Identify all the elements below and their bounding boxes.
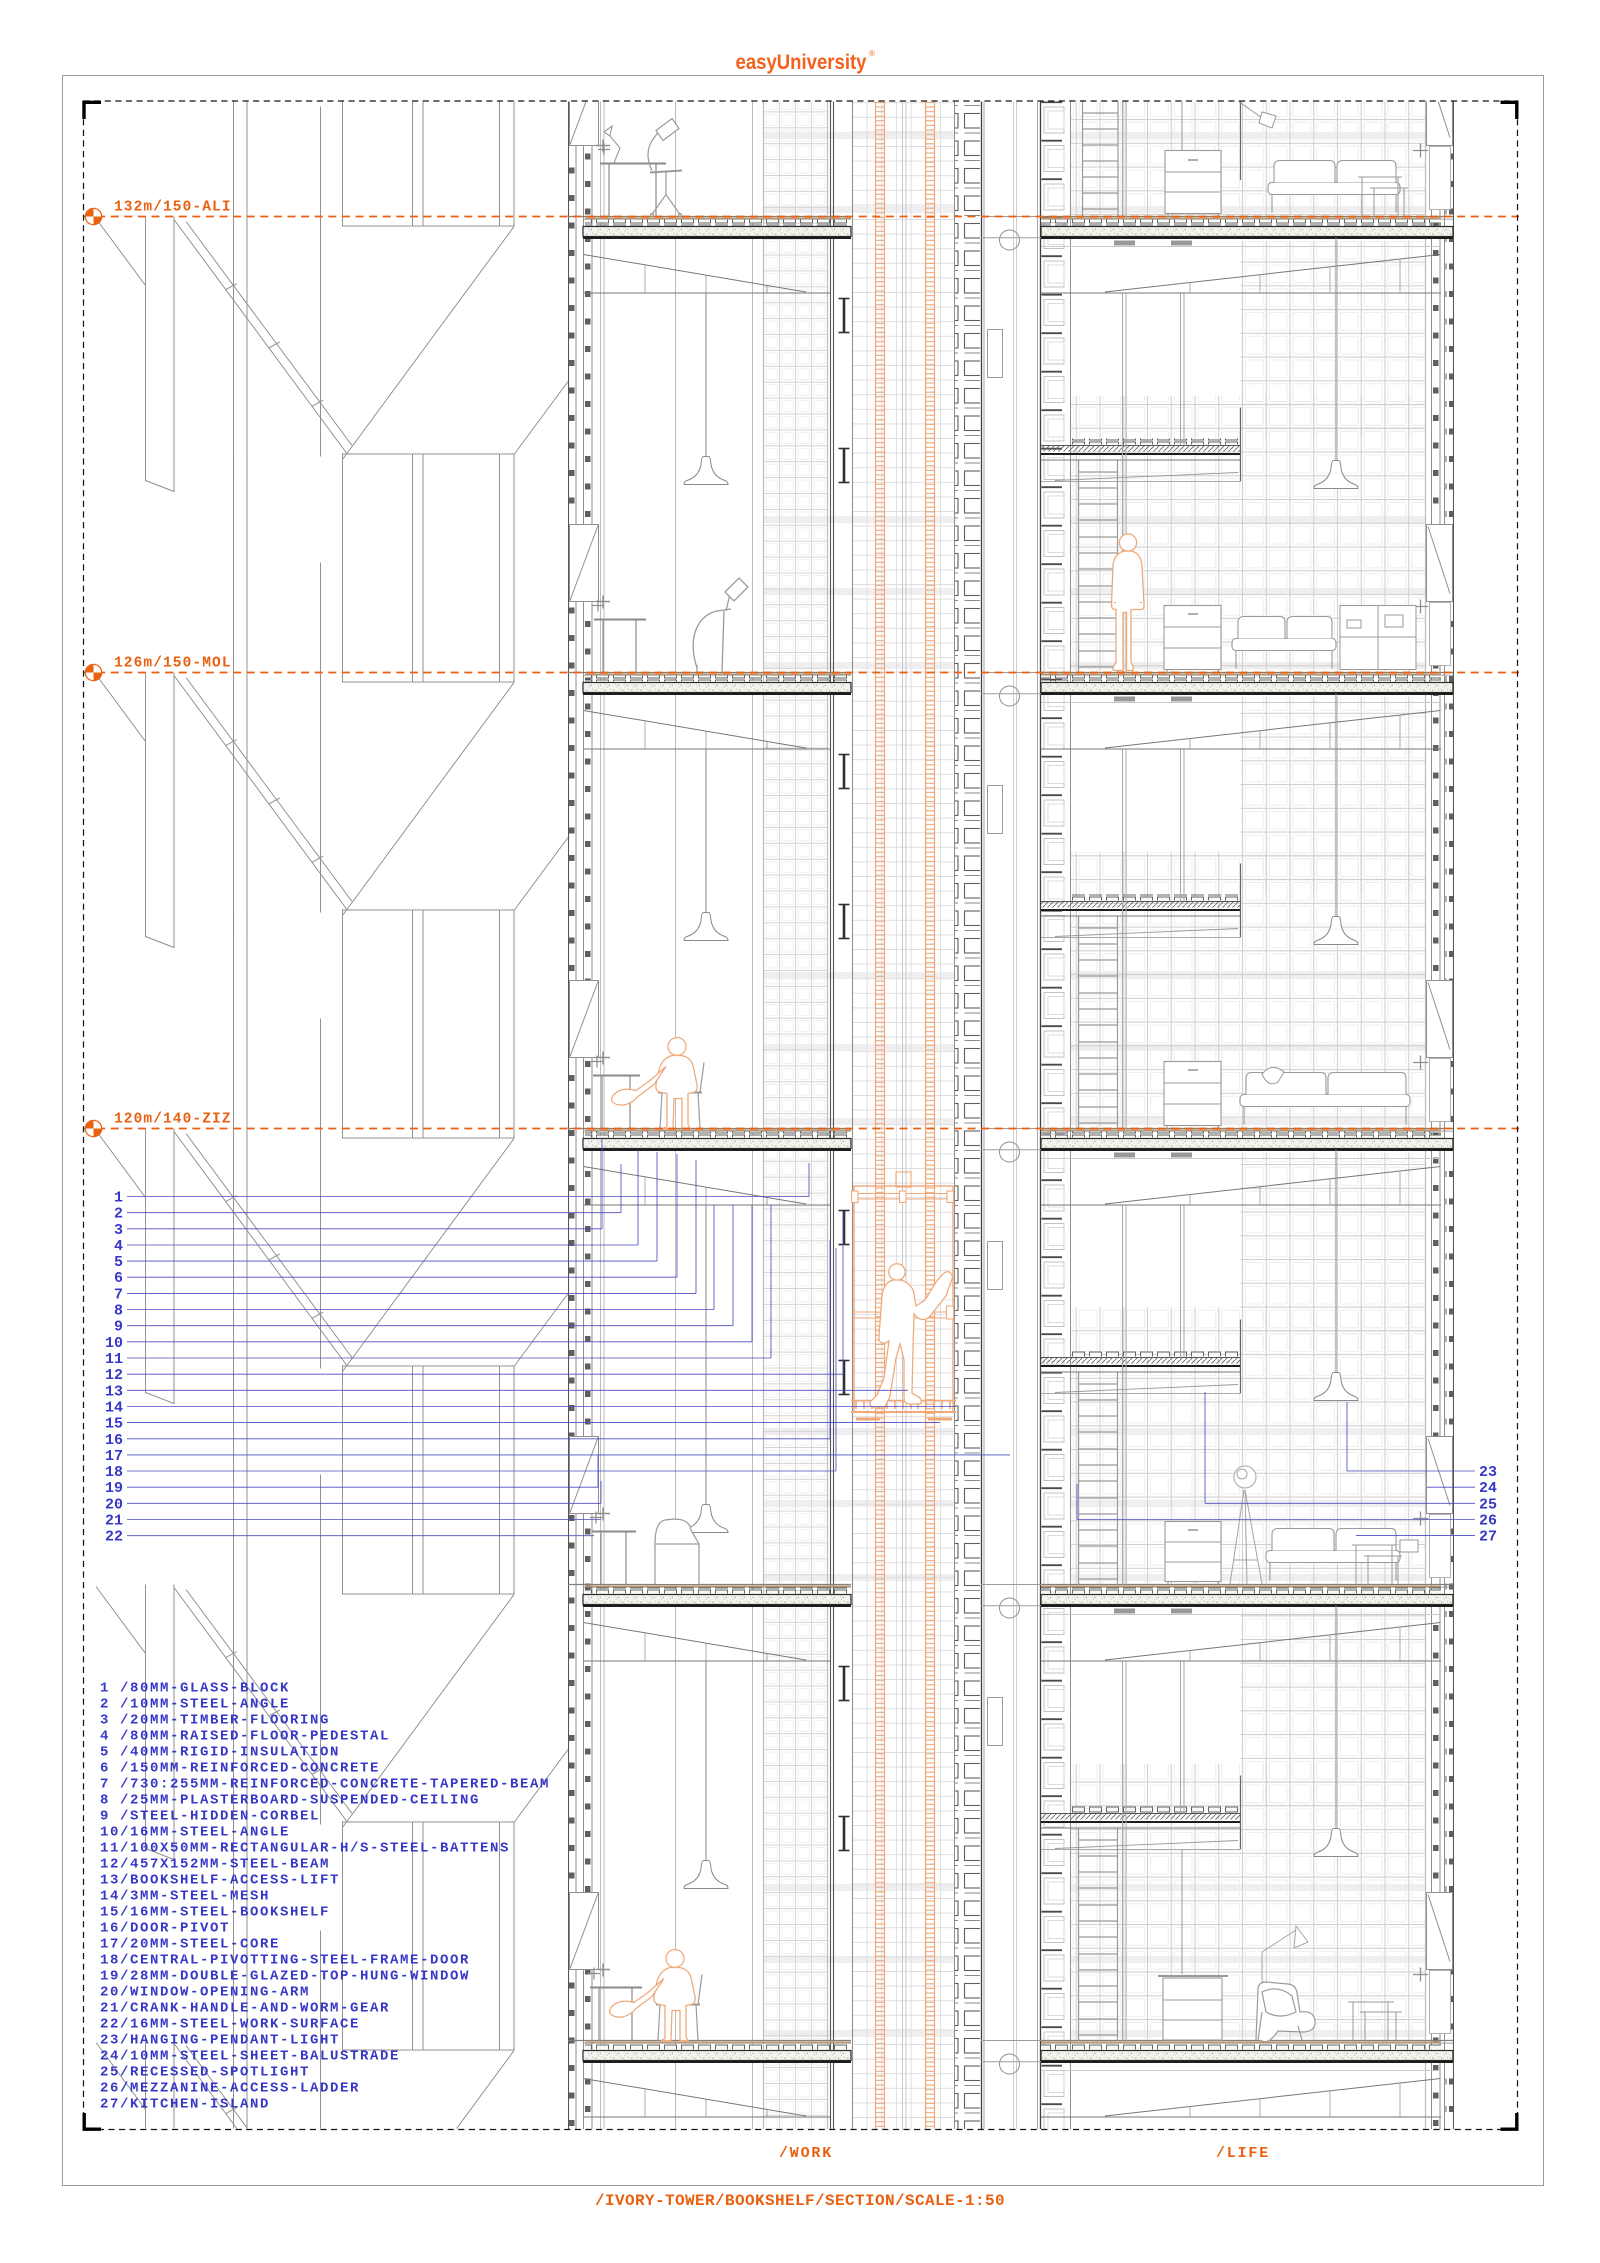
svg-text:16: 16 bbox=[105, 1432, 123, 1449]
svg-text:13/BOOKSHELF-ACCESS-LIFT: 13/BOOKSHELF-ACCESS-LIFT bbox=[100, 1873, 340, 1889]
svg-text:2 /10MM-STEEL-ANGLE: 2 /10MM-STEEL-ANGLE bbox=[100, 1697, 290, 1713]
svg-text:14: 14 bbox=[105, 1400, 123, 1417]
svg-text:24/10MM-STEEL-SHEET-BALUSTRADE: 24/10MM-STEEL-SHEET-BALUSTRADE bbox=[100, 2049, 400, 2065]
svg-text:7: 7 bbox=[114, 1286, 123, 1303]
svg-text:4: 4 bbox=[114, 1238, 123, 1255]
svg-text:14/3MM-STEEL-MESH: 14/3MM-STEEL-MESH bbox=[100, 1889, 270, 1905]
svg-text:120m/140-ZIZ: 120m/140-ZIZ bbox=[114, 1112, 232, 1128]
svg-text:9 /STEEL-HIDDEN-CORBEL: 9 /STEEL-HIDDEN-CORBEL bbox=[100, 1809, 320, 1825]
svg-text:8: 8 bbox=[114, 1303, 123, 1320]
svg-text:21/CRANK-HANDLE-AND-WORM-GEAR: 21/CRANK-HANDLE-AND-WORM-GEAR bbox=[100, 2001, 390, 2017]
svg-text:27: 27 bbox=[1479, 1529, 1497, 1546]
svg-text:9: 9 bbox=[114, 1319, 123, 1336]
svg-text:26: 26 bbox=[1479, 1513, 1497, 1530]
svg-text:10/16MM-STEEL-ANGLE: 10/16MM-STEEL-ANGLE bbox=[100, 1825, 290, 1841]
svg-text:18: 18 bbox=[105, 1464, 123, 1481]
svg-text:1: 1 bbox=[114, 1190, 123, 1207]
svg-text:5: 5 bbox=[114, 1254, 123, 1271]
svg-text:6 /150MM-REINFORCED-CONCRETE: 6 /150MM-REINFORCED-CONCRETE bbox=[100, 1761, 380, 1777]
svg-text:126m/150-MOL: 126m/150-MOL bbox=[114, 656, 232, 672]
svg-text:6: 6 bbox=[114, 1270, 123, 1287]
svg-text:23/HANGING-PENDANT-LIGHT: 23/HANGING-PENDANT-LIGHT bbox=[100, 2033, 340, 2049]
svg-text:/WORK: /WORK bbox=[779, 2145, 833, 2162]
svg-text:132m/150-ALI: 132m/150-ALI bbox=[114, 200, 232, 216]
svg-text:11/100X50MM-RECTANGULAR-H/S-ST: 11/100X50MM-RECTANGULAR-H/S-STEEL-BATTEN… bbox=[100, 1841, 510, 1857]
svg-text:10: 10 bbox=[105, 1335, 123, 1352]
svg-text:20/WINDOW-OPENING-ARM: 20/WINDOW-OPENING-ARM bbox=[100, 1985, 310, 2001]
svg-text:25: 25 bbox=[1479, 1496, 1497, 1513]
svg-text:19/28MM-DOUBLE-GLAZED-TOP-HUNG: 19/28MM-DOUBLE-GLAZED-TOP-HUNG-WINDOW bbox=[100, 1969, 470, 1985]
svg-text:26/MEZZANINE-ACCESS-LADDER: 26/MEZZANINE-ACCESS-LADDER bbox=[100, 2081, 360, 2097]
svg-text:2: 2 bbox=[114, 1206, 123, 1223]
svg-text:25/RECESSED-SPOTLIGHT: 25/RECESSED-SPOTLIGHT bbox=[100, 2065, 310, 2081]
svg-text:13: 13 bbox=[105, 1383, 123, 1400]
svg-text:/IVORY-TOWER/BOOKSHELF/SECTION: /IVORY-TOWER/BOOKSHELF/SECTION/SCALE-1:5… bbox=[595, 2192, 1005, 2210]
svg-text:/LIFE: /LIFE bbox=[1216, 2145, 1270, 2162]
svg-text:7 /730:255MM-REINFORCED-CONCRE: 7 /730:255MM-REINFORCED-CONCRETE-TAPERED… bbox=[100, 1777, 550, 1793]
svg-text:22/16MM-STEEL-WORK-SURFACE: 22/16MM-STEEL-WORK-SURFACE bbox=[100, 2017, 360, 2033]
svg-text:23: 23 bbox=[1479, 1464, 1497, 1481]
svg-text:3: 3 bbox=[114, 1222, 123, 1239]
svg-text:4 /80MM-RAISED-FLOOR-PEDESTAL: 4 /80MM-RAISED-FLOOR-PEDESTAL bbox=[100, 1729, 390, 1745]
svg-text:27/KITCHEN-ISLAND: 27/KITCHEN-ISLAND bbox=[100, 2097, 270, 2113]
svg-text:22: 22 bbox=[105, 1529, 123, 1546]
svg-text:11: 11 bbox=[105, 1351, 123, 1368]
svg-text:15/16MM-STEEL-BOOKSHELF: 15/16MM-STEEL-BOOKSHELF bbox=[100, 1905, 330, 1921]
svg-text:19: 19 bbox=[105, 1480, 123, 1497]
svg-text:8 /25MM-PLASTERBOARD-SUSPENDED: 8 /25MM-PLASTERBOARD-SUSPENDED-CEILING bbox=[100, 1793, 480, 1809]
svg-text:15: 15 bbox=[105, 1416, 123, 1433]
svg-text:easyUniversity: easyUniversity bbox=[736, 50, 867, 74]
svg-text:17/20MM-STEEL-CORE: 17/20MM-STEEL-CORE bbox=[100, 1937, 280, 1953]
svg-text:5 /40MM-RIGID-INSULATION: 5 /40MM-RIGID-INSULATION bbox=[100, 1745, 340, 1761]
svg-text:17: 17 bbox=[105, 1448, 123, 1465]
svg-text:16/DOOR-PIVOT: 16/DOOR-PIVOT bbox=[100, 1921, 230, 1937]
svg-text:21: 21 bbox=[105, 1513, 123, 1530]
svg-text:12/457X152MM-STEEL-BEAM: 12/457X152MM-STEEL-BEAM bbox=[100, 1857, 330, 1873]
svg-text:24: 24 bbox=[1479, 1480, 1497, 1497]
svg-text:18/CENTRAL-PIVOTTING-STEEL-FRA: 18/CENTRAL-PIVOTTING-STEEL-FRAME-DOOR bbox=[100, 1953, 470, 1969]
svg-text:12: 12 bbox=[105, 1367, 123, 1384]
svg-text:®: ® bbox=[869, 49, 875, 58]
svg-text:20: 20 bbox=[105, 1496, 123, 1513]
svg-text:3 /20MM-TIMBER-FLOORING: 3 /20MM-TIMBER-FLOORING bbox=[100, 1713, 330, 1729]
svg-text:1 /80MM-GLASS-BLOCK: 1 /80MM-GLASS-BLOCK bbox=[100, 1681, 290, 1697]
